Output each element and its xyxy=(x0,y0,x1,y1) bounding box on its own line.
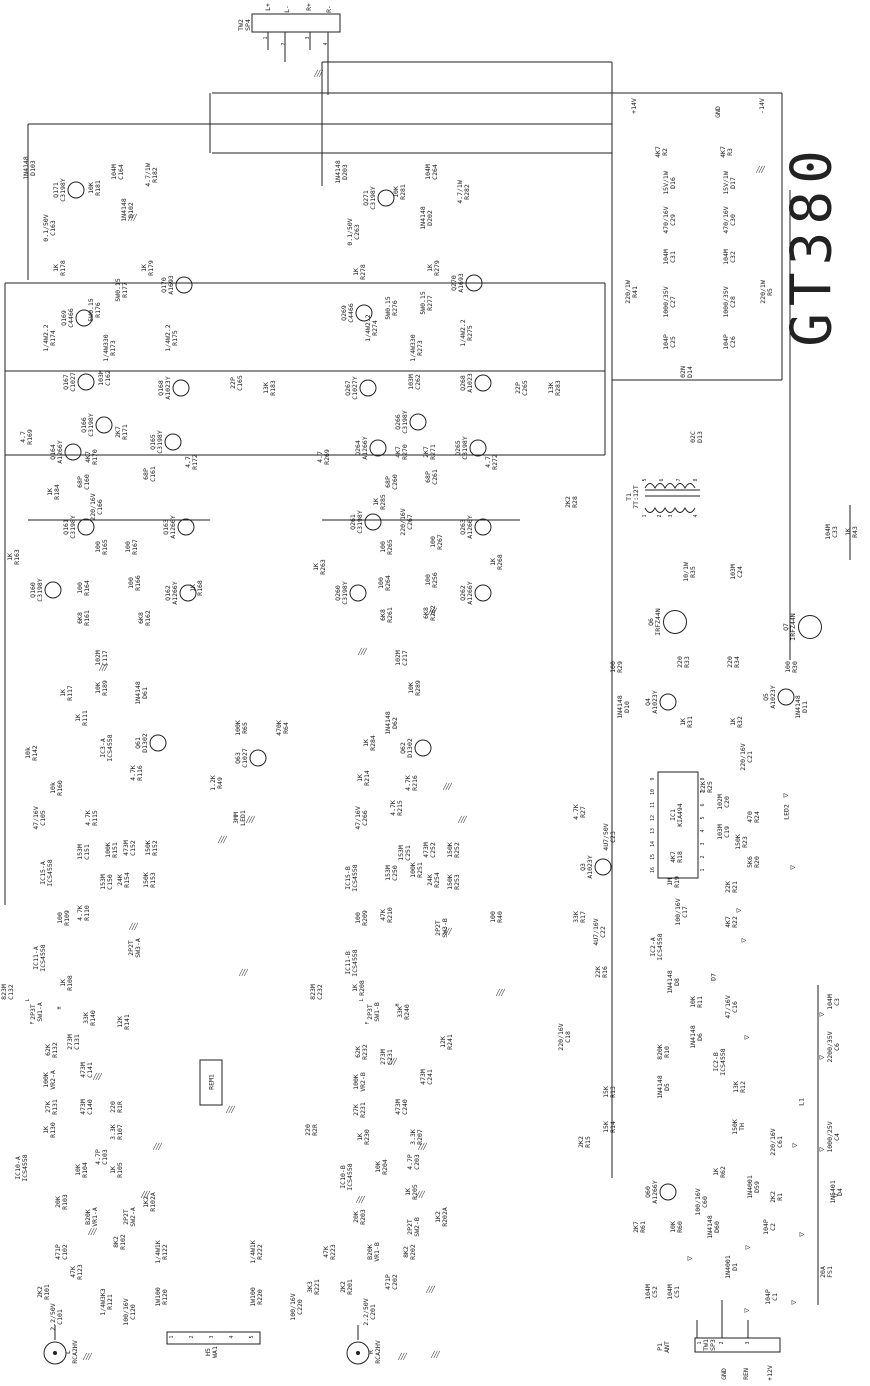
component-tw2: TW2SP4 xyxy=(238,19,252,31)
mosfet-symbol-q7 xyxy=(798,615,822,639)
component-r241: 12KR241 xyxy=(440,1034,454,1050)
component-q169: Q169C4466 xyxy=(61,308,75,328)
component-r210: 47KR210 xyxy=(380,907,394,923)
component-d14: 02ND14 xyxy=(680,366,694,378)
component-d10: 1N4148D10 xyxy=(617,695,631,718)
component-d202: 1N4148D202 xyxy=(420,206,434,229)
component-vr2-a: 100KVR2-A xyxy=(43,1070,57,1090)
ic1-pin-15: 15 xyxy=(650,854,656,860)
component-r207: 3.3KR207 xyxy=(410,1129,424,1145)
component-r282: 4.7/1WR282 xyxy=(457,180,471,203)
transistor-symbol-q270 xyxy=(466,275,483,292)
transistor-symbol-q261 xyxy=(365,514,382,531)
component-r264: 100R264 xyxy=(378,575,392,591)
component-c19: 103MC19 xyxy=(717,824,731,840)
component-d203: 1N4148D203 xyxy=(335,160,349,183)
component-r274: 1/4W2.2R274 xyxy=(365,314,379,341)
component-p1: P1ANT xyxy=(657,1341,671,1353)
component-r202a: 1K2R202A xyxy=(435,1207,449,1227)
component-r103: 20KR103 xyxy=(55,1194,69,1210)
signal-label-gnd: GND xyxy=(714,106,722,118)
component-ic1: IC1KIA494 xyxy=(670,803,684,826)
component-q261: Q261C3198Y xyxy=(350,510,364,533)
component-r171: 2K7R171 xyxy=(115,424,129,440)
component-r251: 100KR251 xyxy=(410,862,424,878)
component-r175: 1/4W2.2R175 xyxy=(165,324,179,351)
signal-label-3: 3 xyxy=(209,1335,215,1338)
component-r170: 4K7R170 xyxy=(85,449,99,465)
component-r203: 20KR203 xyxy=(353,1209,367,1225)
component-r281: 10KR281 xyxy=(393,184,407,200)
signal-label-+12v: +12V xyxy=(766,1365,774,1381)
component-c241: 473MC241 xyxy=(420,1069,434,1085)
component-c2: 104PC2 xyxy=(763,1219,777,1235)
component-r215: 4.7KR215 xyxy=(390,800,404,816)
mosfet-symbol-q6 xyxy=(663,610,687,634)
signal-label-1: 1 xyxy=(169,1335,175,1338)
component-r18: 4K7R18 xyxy=(670,851,684,863)
signal-label-4: 4 xyxy=(693,514,699,517)
component-r35: 10/1WR35 xyxy=(683,562,697,582)
signal-label-gnd: GND xyxy=(720,1368,728,1380)
component-c166: 220/16VC166 xyxy=(90,493,104,520)
component-sw2-a: 2P2TSW2-A xyxy=(123,1207,137,1227)
component-q171: Q171C3198Y xyxy=(53,178,67,201)
component-r172: 4.7R172 xyxy=(185,454,199,470)
component-r32: 1KR32 xyxy=(730,716,744,728)
component-q5: Q5A1023Y xyxy=(763,685,777,708)
ic1-pin-1: 1 xyxy=(700,868,706,871)
component-c101: 2.2/50VC101 xyxy=(50,1303,64,1330)
component-r277: 5W0.15R277 xyxy=(420,291,434,314)
transistor-symbol-q61 xyxy=(150,735,167,752)
component-c251: 153MC251 xyxy=(398,845,412,861)
component-c52: 104MC52 xyxy=(645,1284,659,1300)
component-r1r: 220R1R xyxy=(110,1101,124,1113)
component-r177: 5W0.15R177 xyxy=(115,278,129,301)
component-r222: 1/4W1KR222 xyxy=(250,1240,264,1263)
transistor-symbol-q171 xyxy=(68,182,85,199)
component-r43: 1KR43 xyxy=(845,526,859,538)
component-q7: Q7IRFZ44N xyxy=(783,613,797,640)
signal-label-l: L xyxy=(25,998,31,1001)
component-r60: 10KR60 xyxy=(670,1221,684,1233)
component-d59: 1N4001D59 xyxy=(747,1175,761,1198)
ground-icon: ╱╱╱ xyxy=(93,1074,101,1081)
component-r232: 62KR232 xyxy=(355,1044,369,1060)
component-r256: 100R256 xyxy=(425,572,439,588)
signal-label-ren: REN xyxy=(742,1368,750,1380)
component-c262: 103MC262 xyxy=(408,374,422,390)
component-sw1-b: 2P3TSW1-B xyxy=(367,1002,381,1022)
component-r23: 150KR23 xyxy=(735,834,749,850)
component-c263: 0.1/50VC263 xyxy=(347,218,361,245)
component-r141: 12KR141 xyxy=(117,1014,131,1030)
component-c203: 4.7PC203 xyxy=(407,1154,421,1170)
component-l1: L1 xyxy=(799,1098,806,1106)
component-r132: 62KR132 xyxy=(45,1042,59,1058)
component-r283: 13KR283 xyxy=(548,380,562,396)
signal-label-+14v: +14V xyxy=(630,98,638,114)
ic1-pin-9: 9 xyxy=(650,777,656,780)
component-c26: 104PC26 xyxy=(723,334,737,350)
transistor-symbol-q260 xyxy=(350,585,367,602)
component-r223: 47KR223 xyxy=(323,1244,337,1260)
component-vr2-b: 100KVR2-B xyxy=(353,1072,367,1092)
component-q168: Q168A1023Y xyxy=(158,376,172,399)
component-c152: 473MC152 xyxy=(123,840,137,856)
component-c232: 823MC232 xyxy=(310,984,324,1000)
ground-icon: ╱╱╱ xyxy=(356,1197,364,1204)
component-r153: 150KR153 xyxy=(143,872,157,888)
component-d8: 1N4148D8 xyxy=(667,970,681,993)
component-c140: 473MC140 xyxy=(80,1099,94,1115)
component-r31: 1KR31 xyxy=(680,716,694,728)
component-r189: 10KR189 xyxy=(95,680,109,696)
component-c102: 471PC102 xyxy=(55,1244,69,1260)
component-sw3-b: 2P2TSW3-B xyxy=(435,918,449,938)
component-r19: 1MR19 xyxy=(667,876,681,888)
component-c117: 102MC117 xyxy=(95,650,109,666)
component-r22: 4K7R22 xyxy=(725,916,739,928)
component-r169: 4.7R169 xyxy=(20,429,34,445)
component-ic10-b: IC10-BICS4558 xyxy=(340,1163,354,1190)
signal-label-2: 2 xyxy=(719,1341,725,1344)
component-q167: Q167C1027 xyxy=(63,372,77,392)
transistor-symbol-q267 xyxy=(360,380,377,397)
component-r28: 2K2R28 xyxy=(565,496,579,508)
component-r3: 4K7R3 xyxy=(720,146,734,158)
component-c267: 220/16VC267 xyxy=(400,508,414,535)
component-r101: 2K2R101 xyxy=(37,1284,51,1300)
component-ic2-a: IC2-AICS4558 xyxy=(650,933,664,960)
signal-label-f: F xyxy=(30,1021,36,1024)
component-ic10-a: IC10-AICS4558 xyxy=(15,1154,29,1181)
component-q262: Q262A1266Y xyxy=(460,581,474,604)
component-c23: 4U7/50VC23 xyxy=(603,823,617,850)
component-d1: 1N4001D1 xyxy=(725,1255,739,1278)
ground-arrow-icon: ▷ xyxy=(791,863,796,872)
ground-arrow-icon: ▷ xyxy=(800,1230,805,1239)
component-r240: 33KR240 xyxy=(397,1004,411,1020)
component-r27: 4.7KR27 xyxy=(573,804,587,820)
component-r279: 1KR279 xyxy=(427,260,441,276)
component-led2: LED2 xyxy=(784,804,791,820)
component-q163: Q163A1266Y xyxy=(163,515,177,538)
component-r122: 1/4W1KR122 xyxy=(155,1240,169,1263)
component-c105: 47/16VC105 xyxy=(33,806,47,829)
component-r276: 5W0.15R276 xyxy=(385,296,399,319)
component-r167: 100R167 xyxy=(125,539,139,555)
signal-label-l: L- xyxy=(283,5,291,13)
component-c22: 4U7/16VC22 xyxy=(593,918,607,945)
component-c16: 47/16VC16 xyxy=(725,995,739,1018)
component-q164: Q164A1266Y xyxy=(50,440,64,463)
component-c265: 22PC265 xyxy=(515,380,529,396)
ic1-pin-13: 13 xyxy=(650,828,656,834)
ic1-pin-11: 11 xyxy=(650,802,656,808)
component-r204: 10KR204 xyxy=(375,1159,389,1175)
component-r1: 2K2R1 xyxy=(770,1191,784,1203)
component-q63: Q63C1027 xyxy=(235,748,249,768)
component-vr1-b: B20KVR1-B xyxy=(367,1242,381,1262)
ground-arrow-icon: ▷ xyxy=(742,936,747,945)
transistor-symbol-q170 xyxy=(176,277,193,294)
component-r161: 6K8R161 xyxy=(77,610,91,626)
component-c151: 153MC151 xyxy=(77,844,91,860)
ground-icon: ╱╱╱ xyxy=(458,817,466,824)
component-r108: 1KR108 xyxy=(60,975,74,991)
transistor-symbol-q264 xyxy=(370,440,387,457)
component-q170: Q170A1693 xyxy=(161,275,175,295)
component-r65: 100KR65 xyxy=(235,720,249,736)
ground-icon: ╱╱╱ xyxy=(239,970,247,977)
component-ic3-a: IC3-AICS4558 xyxy=(100,734,114,761)
component-r2r: 220R2R xyxy=(305,1124,319,1136)
ground-icon: ╱╱╱ xyxy=(153,1144,161,1151)
component-d60: 1N4148D60 xyxy=(707,1215,721,1238)
ic1-pin-14: 14 xyxy=(650,841,656,847)
transistor-symbol-q63 xyxy=(250,750,267,767)
component-r164: 100R164 xyxy=(77,580,91,596)
component-r154: 24KR154 xyxy=(117,872,131,888)
component-ic11-a: IC11-AICS4558 xyxy=(33,944,47,971)
component-d102: 1N4148D102 xyxy=(121,198,135,221)
component-r16: 22KR16 xyxy=(595,966,609,978)
signal-label-3: 3 xyxy=(305,36,311,39)
signal-label-l+: L+ xyxy=(264,3,272,11)
component-c103: 4.7PC103 xyxy=(95,1149,109,1165)
component-r272: 4.7R272 xyxy=(485,454,499,470)
component-q260: Q260C3198Y xyxy=(335,581,349,604)
ground-arrow-icon: ▷ xyxy=(688,1254,693,1263)
component-q264: Q264A1266Y xyxy=(355,436,369,459)
signal-label-1: 1 xyxy=(263,36,269,39)
component-r14: 15KR14 xyxy=(603,1121,617,1133)
signal-label-8: 8 xyxy=(693,478,699,481)
component-r202: 8K2R202 xyxy=(403,1244,417,1260)
component-c161: 68PC161 xyxy=(143,466,157,482)
component-c17: 100/16VC17 xyxy=(675,898,689,925)
component-c261: 68PC261 xyxy=(425,469,439,485)
ic1-pin-10: 10 xyxy=(650,789,656,795)
component-c231: 273MC231 xyxy=(380,1049,394,1065)
component-r12: 13KR12 xyxy=(733,1081,747,1093)
component-r262: 6K8R262 xyxy=(423,605,437,621)
component-c131: 273MC131 xyxy=(67,1034,81,1050)
component-th: 150KTH xyxy=(732,1119,746,1135)
component-r270: 4K7R270 xyxy=(395,444,409,460)
component-d13: 02CD13 xyxy=(690,431,704,443)
component-c29: 470/16VC29 xyxy=(663,206,677,233)
component-r21: 22KR21 xyxy=(725,881,739,893)
ic1-pin-4: 4 xyxy=(700,829,706,832)
component-r29: 100R29 xyxy=(610,661,624,673)
component-r40: 100R40 xyxy=(490,911,504,923)
signal-label-h: H xyxy=(57,1006,63,1009)
transistor-symbol-q268 xyxy=(475,375,492,392)
signal-label-3: 3 xyxy=(668,514,674,517)
component-r142: 10kR142 xyxy=(25,745,39,761)
component-c201: 2.2/50VC201 xyxy=(363,1298,377,1325)
component-r120: 1W100R120 xyxy=(155,1287,169,1307)
component-r13: 15KR13 xyxy=(603,1086,617,1098)
component-r289: 10KR289 xyxy=(408,680,422,696)
component-c6: 2200/35VC6 xyxy=(827,1031,841,1062)
component-r: RRCA2HV xyxy=(368,1340,382,1363)
component-r160: 10kR160 xyxy=(50,780,64,796)
component-c250: 153MC250 xyxy=(385,865,399,881)
component-c160: 68PC160 xyxy=(77,474,91,490)
component-r34: 220R34 xyxy=(727,656,741,668)
component-r178: 1KR178 xyxy=(53,260,67,276)
component-c60: 100/16VC60 xyxy=(695,1188,709,1215)
component-r205: 1KR205 xyxy=(405,1184,419,1200)
component-c217: 102MC217 xyxy=(395,650,409,666)
component-r104: 10KR104 xyxy=(75,1162,89,1178)
transistor-symbol-q168 xyxy=(173,380,190,397)
component-r184: 1KR184 xyxy=(47,484,61,500)
component-c31: 104MC31 xyxy=(663,249,677,265)
component-r41: 220/1WR41 xyxy=(625,280,639,303)
ground-arrow-icon: ▷ xyxy=(793,1141,798,1150)
ground-icon: ╱╱╱ xyxy=(246,817,254,824)
ground-arrow-icon: ▷ xyxy=(820,1010,825,1019)
component-c252: 473MC252 xyxy=(423,842,437,858)
component-q263: Q263A1266Y xyxy=(460,515,474,538)
component-r117: 1KR117 xyxy=(60,685,74,701)
component-c28: 1000/35VC28 xyxy=(723,286,737,317)
component-c264: 104MC264 xyxy=(425,164,439,180)
ground-arrow-icon: ▷ xyxy=(745,1033,750,1042)
ic1-pin-6: 6 xyxy=(700,803,706,806)
component-rem1: REM1 xyxy=(209,1074,216,1090)
component-c132: 823MC132 xyxy=(1,984,15,1000)
component-r284: 1KR284 xyxy=(363,735,377,751)
component-r64: 470KR64 xyxy=(276,720,290,736)
component-r140: 33KR140 xyxy=(83,1010,97,1026)
component-r116: 4.7KR116 xyxy=(130,765,144,781)
component-r163: 1KR163 xyxy=(7,549,21,565)
signal-label-5: 5 xyxy=(249,1335,255,1338)
component-r220: 1W100R220 xyxy=(250,1287,264,1307)
transistor-symbol-q163 xyxy=(178,519,195,536)
component-d16: 15V/1WD16 xyxy=(663,171,677,194)
component-r179: 1KR179 xyxy=(141,260,155,276)
component-r107: 3.3KR107 xyxy=(110,1124,124,1140)
signal-label-5: 5 xyxy=(642,478,648,481)
component-r2: 4K7R2 xyxy=(655,146,669,158)
component-r115: 4.7KR115 xyxy=(85,810,99,826)
component-r62: 1KR62 xyxy=(713,1166,727,1178)
ground-icon: ╱╱╱ xyxy=(426,1287,434,1294)
signal-label-6: 6 xyxy=(659,478,665,481)
component-r121: 1/4W3K3R121 xyxy=(100,1288,114,1315)
transistor-symbol-q60 xyxy=(660,1184,677,1201)
component-d5: 1N4148D5 xyxy=(657,1075,671,1098)
component-sw2-b: 2P2TSW2-B xyxy=(407,1217,421,1237)
component-q267: Q267C1027Y xyxy=(345,376,359,399)
component-c202: 471PC202 xyxy=(385,1274,399,1290)
component-r30: 100R30 xyxy=(785,661,799,673)
component-c30: 470/16VC30 xyxy=(723,206,737,233)
component-r209: 100R209 xyxy=(355,910,369,926)
component-r267: 100R267 xyxy=(430,534,444,550)
component-r216: 4.7KR216 xyxy=(405,775,419,791)
component-c120: 100/16VC120 xyxy=(123,1298,137,1325)
signal-label-1: 1 xyxy=(642,514,648,517)
signal-label-h: H xyxy=(395,1003,401,1006)
signal-label-2: 2 xyxy=(281,42,287,45)
ic1-pin-8: 8 xyxy=(700,777,706,780)
component-fs1: 20AFS1 xyxy=(820,1266,834,1278)
component-r24: 470R24 xyxy=(747,811,761,823)
component-r253: 150KR253 xyxy=(447,874,461,890)
component-r17: 33KR17 xyxy=(573,911,587,923)
transistor-symbol-q161 xyxy=(78,519,95,536)
component-r230: 1KR230 xyxy=(357,1129,371,1145)
component-r102: 8K2R102 xyxy=(113,1234,127,1250)
component-r15: 2K2R15 xyxy=(578,1136,592,1148)
component-d103: 1N4148D103 xyxy=(23,156,37,179)
component-q6: Q6IRFZ44N xyxy=(648,608,662,635)
component-r176: 5W0.15R176 xyxy=(88,298,102,321)
transistor-symbol-q3 xyxy=(595,859,612,876)
component-r151: 100KR151 xyxy=(105,842,119,858)
signal-label-4: 4 xyxy=(229,1335,235,1338)
component-q266: Q266C3198Y xyxy=(395,410,409,433)
ground-icon: ╱╱╱ xyxy=(496,990,504,997)
component-c1: 104PC1 xyxy=(765,1289,779,1305)
component-r275: 1/4W2.2R275 xyxy=(460,319,474,346)
signal-label-r+: R+ xyxy=(305,3,313,11)
component-c165: 22PC165 xyxy=(230,375,244,391)
ground-icon: ╱╱╱ xyxy=(218,837,226,844)
rca-pin-r xyxy=(356,1351,360,1355)
component-q162: Q162A1266Y xyxy=(165,581,179,604)
component-r201: 2K2R201 xyxy=(340,1279,354,1295)
component-c162: 103MC162 xyxy=(98,370,112,386)
component-q166: Q166C3198Y xyxy=(81,413,95,436)
component-r285: 1KR285 xyxy=(373,494,387,510)
ground-arrow-icon: ▷ xyxy=(737,906,742,915)
component-r273: 1/4W330R273 xyxy=(410,334,424,361)
ground-icon: ╱╱╱ xyxy=(314,71,322,78)
ground-icon: ╱╱╱ xyxy=(398,1354,406,1361)
transistor-symbol-q262 xyxy=(475,585,492,602)
component-r174: 1/4W2.2R174 xyxy=(43,324,57,351)
signal-label-3: 3 xyxy=(745,1341,751,1344)
component-r5: 220/1WR5 xyxy=(760,280,774,303)
component-r162: 6K8R162 xyxy=(138,610,152,626)
signal-label-14v: -14V xyxy=(758,98,766,114)
component-r278: 1KR278 xyxy=(353,264,367,280)
component-q160: Q160C3198Y xyxy=(30,578,44,601)
component-c27: 1000/35VC27 xyxy=(663,286,677,317)
component-q269: Q269C4466 xyxy=(341,303,355,323)
signal-label-2: 2 xyxy=(189,1335,195,1338)
component-d17: 15V/1WD17 xyxy=(723,171,737,194)
component-sw3-a: 2P2TSW3-A xyxy=(128,938,142,958)
component-r33: 220R33 xyxy=(677,656,691,668)
component-q61: Q61D1302 xyxy=(135,733,149,753)
component-d11: 1N4148D11 xyxy=(795,695,809,718)
component-r268: 1KR268 xyxy=(490,554,504,570)
component-ic15-a: IC15-AICS4558 xyxy=(40,859,54,886)
component-sw1-a: 2P3TSW1-A xyxy=(30,1002,44,1022)
ground-icon: ╱╱╱ xyxy=(88,1229,96,1236)
signal-label-r: R- xyxy=(325,5,333,13)
